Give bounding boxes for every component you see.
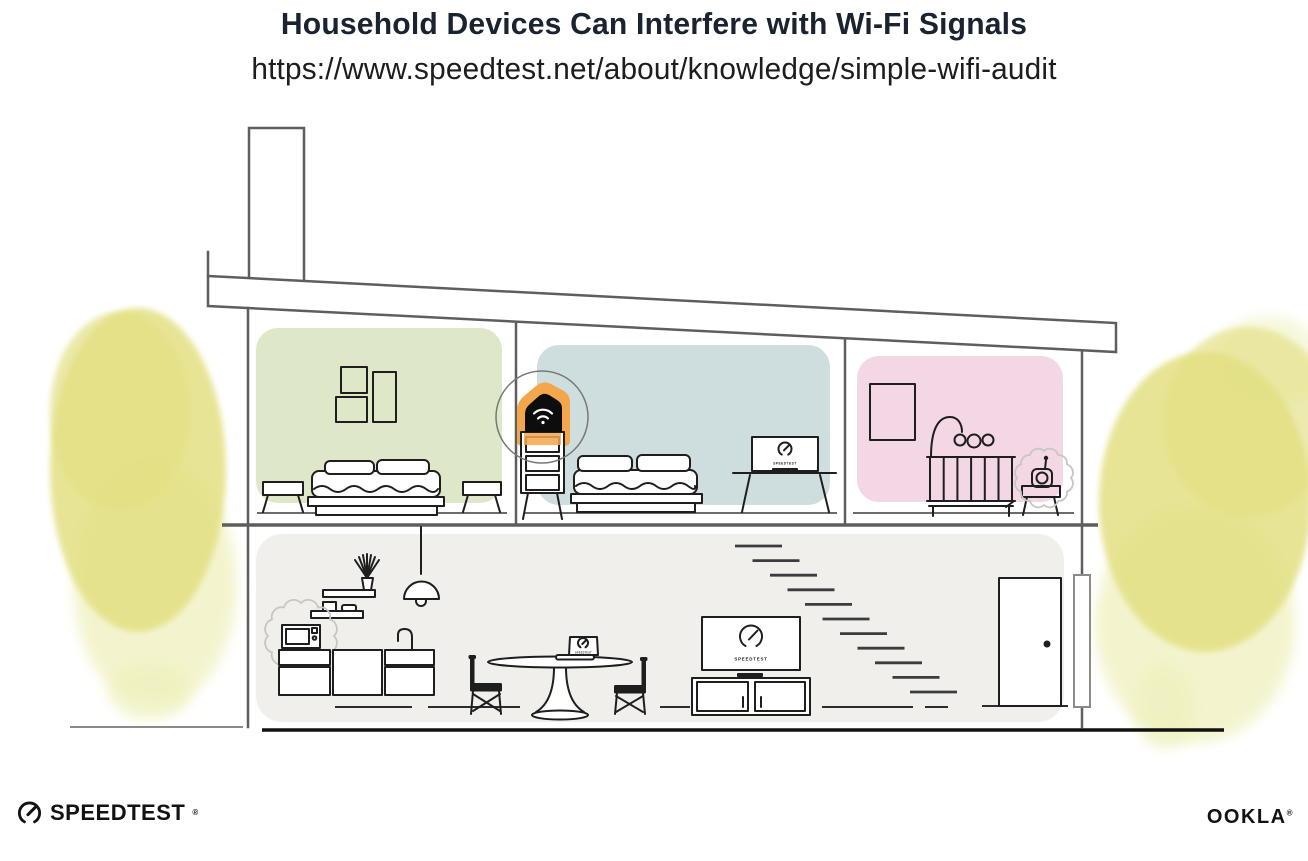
chimney xyxy=(249,128,304,282)
tv-screen-label: SPEEDTEST xyxy=(734,657,767,662)
page-title: Household Devices Can Interfere with Wi-… xyxy=(20,6,1289,42)
ookla-wordmark: OOKLA xyxy=(1207,806,1287,828)
door-knob xyxy=(1044,641,1051,648)
microwave xyxy=(282,625,320,648)
bed-green xyxy=(308,460,444,515)
downspout xyxy=(1074,575,1090,707)
source-url: https://www.speedtest.net/about/knowledg… xyxy=(26,51,1282,87)
tv: SPEEDTEST xyxy=(702,617,800,677)
tree-left xyxy=(50,308,237,720)
speedtest-wordmark: SPEEDTEST xyxy=(50,800,185,826)
dresser xyxy=(521,432,564,519)
laptop-screen-label: SPEEDTEST xyxy=(575,651,592,654)
speedtest-logo: SPEEDTEST® xyxy=(16,799,198,826)
ookla-reg-mark: ® xyxy=(1287,808,1294,817)
gauge-icon xyxy=(16,799,43,826)
monitor-screen-label: SPEEDTEST xyxy=(773,462,796,466)
dresser-top-highlight xyxy=(524,433,561,445)
header: Household Devices Can Interfere with Wi-… xyxy=(0,6,1308,87)
front-door xyxy=(999,578,1061,706)
infographic: SPEEDTEST xyxy=(0,0,1308,861)
bed-blue xyxy=(571,455,702,512)
tree-right xyxy=(1095,316,1308,749)
ookla-logo: OOKLA® xyxy=(1207,806,1294,829)
desktop-monitor: SPEEDTEST xyxy=(752,437,818,472)
house-illustration: SPEEDTEST xyxy=(0,0,1308,861)
tv-console xyxy=(692,678,810,715)
speedtest-reg-mark: ® xyxy=(192,808,198,817)
